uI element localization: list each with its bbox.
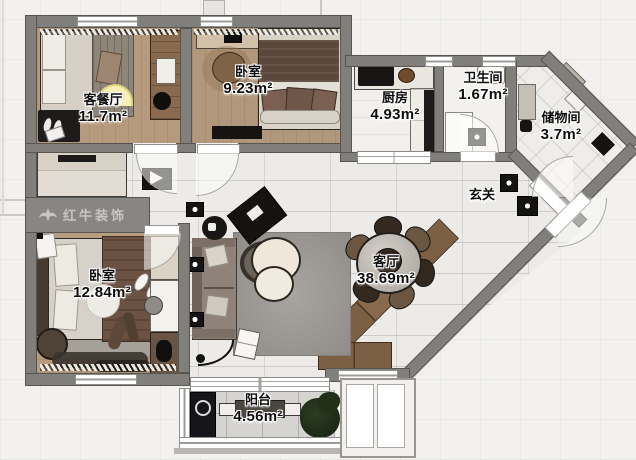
bench xyxy=(212,126,262,139)
room-area: 12.84m² xyxy=(56,284,148,303)
plant-pot xyxy=(153,92,171,110)
pillow xyxy=(204,244,229,268)
exterior-line xyxy=(0,214,25,216)
room-area: 1.67m² xyxy=(440,86,526,105)
room-area: 4.56m² xyxy=(212,408,304,427)
bowl xyxy=(398,68,415,83)
window-bay-frame xyxy=(377,384,405,448)
kitchen-sliding-door xyxy=(357,151,431,164)
room-area: 3.7m² xyxy=(518,126,604,145)
room-name: 客餐厅 xyxy=(57,92,149,108)
room-name: 客厅 xyxy=(340,254,432,270)
room-label-living: 客厅 38.69m² xyxy=(340,254,432,289)
curtain xyxy=(40,29,178,35)
wall xyxy=(25,143,133,153)
watermark-text: 红牛装饰 xyxy=(63,205,127,224)
bolster xyxy=(260,110,340,124)
wall-speaker xyxy=(186,202,204,217)
basket xyxy=(156,340,172,362)
room-area: 11.7m² xyxy=(57,108,149,127)
floor-plan: 红牛装饰 客餐厅 11.7m² 卧室 9.23m² 厨房 4.93m² 卫生间 … xyxy=(0,0,636,460)
speaker-detail xyxy=(208,223,216,231)
room-area: 9.23m² xyxy=(202,80,294,99)
window xyxy=(200,16,233,27)
room-label-bedroom-top: 卧室 9.23m² xyxy=(202,64,294,99)
room-label-entry: 玄关 xyxy=(452,187,512,203)
room-name: 储物间 xyxy=(518,110,604,126)
window-bay-frame xyxy=(346,384,374,448)
watermark: 红牛装饰 xyxy=(38,205,127,224)
cabinet-handle xyxy=(58,155,96,162)
sofa-cushion-line xyxy=(204,287,234,289)
window xyxy=(77,16,138,27)
room-name: 卧室 xyxy=(202,64,294,80)
window xyxy=(75,374,137,385)
bull-logo-icon xyxy=(38,207,58,223)
wall xyxy=(176,143,196,153)
wall xyxy=(340,15,352,162)
room-area: 4.93m² xyxy=(352,106,438,125)
wall xyxy=(180,28,192,153)
balcony-sliding-door xyxy=(190,377,330,392)
shoe-cabinet xyxy=(517,196,538,216)
curtain xyxy=(40,364,176,371)
washer-dial xyxy=(195,400,211,416)
room-name: 玄关 xyxy=(452,187,512,203)
room-name: 阳台 xyxy=(212,392,304,408)
wall xyxy=(178,223,190,373)
curtain xyxy=(194,29,338,35)
room-label-dining-living: 客餐厅 11.7m² xyxy=(57,92,149,127)
balcony-frame-lip xyxy=(174,448,356,454)
wall xyxy=(238,143,351,153)
pillow xyxy=(205,295,230,318)
room-label-bathroom: 卫生间 1.67m² xyxy=(440,70,526,105)
entry-door-arc xyxy=(558,198,607,247)
room-name: 卧室 xyxy=(56,268,148,284)
cooktop xyxy=(358,66,394,86)
lamp-base xyxy=(196,354,205,363)
room-label-storage: 储物间 3.7m² xyxy=(518,110,604,145)
sofa-arm xyxy=(192,329,235,338)
window xyxy=(482,56,516,67)
pillow xyxy=(42,34,66,70)
room-label-kitchen: 厨房 4.93m² xyxy=(352,90,438,125)
coffee-table-small xyxy=(254,266,294,302)
wall xyxy=(25,15,351,28)
exterior-line xyxy=(320,0,322,15)
room-name: 厨房 xyxy=(352,90,438,106)
window xyxy=(425,56,453,67)
room-name: 卫生间 xyxy=(440,70,526,86)
storage-box xyxy=(156,58,176,84)
room-area: 38.69m² xyxy=(340,270,432,289)
exterior-line xyxy=(2,0,4,214)
room-label-bedroom-bottom: 卧室 12.84m² xyxy=(56,268,148,303)
room-label-balcony: 阳台 4.56m² xyxy=(212,392,304,427)
